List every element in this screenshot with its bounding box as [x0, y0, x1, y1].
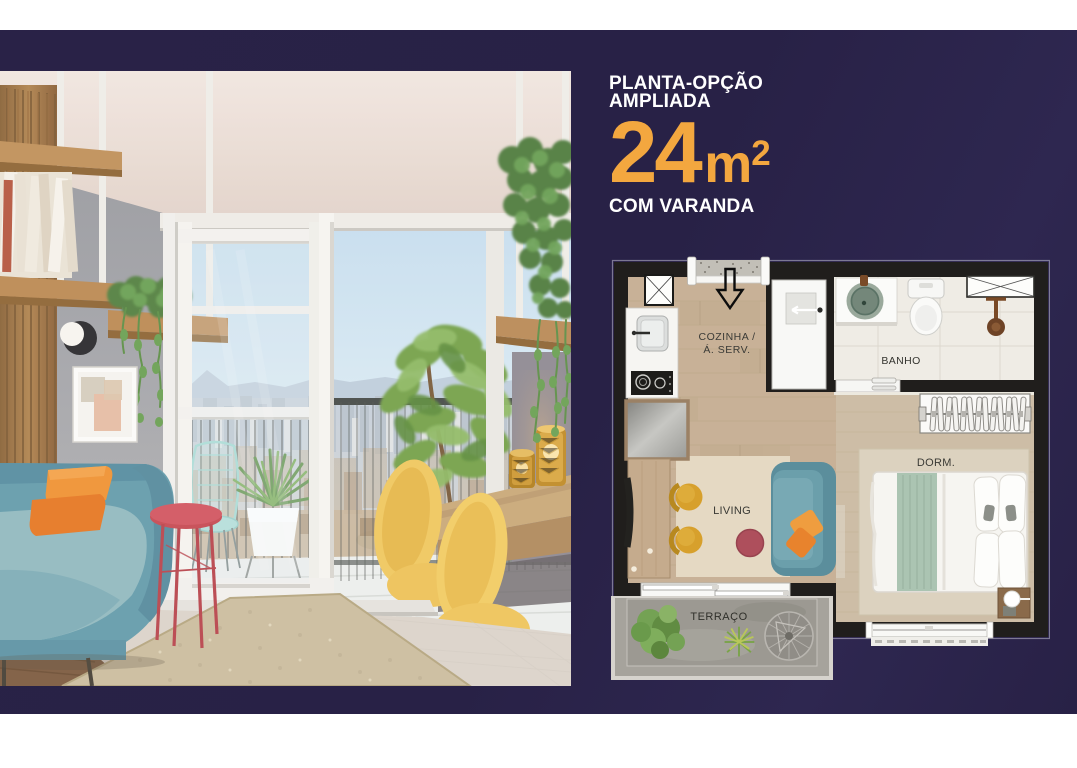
- svg-text:Á. SERV.: Á. SERV.: [703, 343, 750, 356]
- svg-text:LIVING: LIVING: [713, 505, 751, 517]
- svg-text:COZINHA /: COZINHA /: [698, 331, 755, 343]
- svg-text:TERRAÇO: TERRAÇO: [690, 611, 747, 623]
- svg-text:DORM.: DORM.: [917, 457, 955, 469]
- svg-text:BANHO: BANHO: [881, 355, 920, 367]
